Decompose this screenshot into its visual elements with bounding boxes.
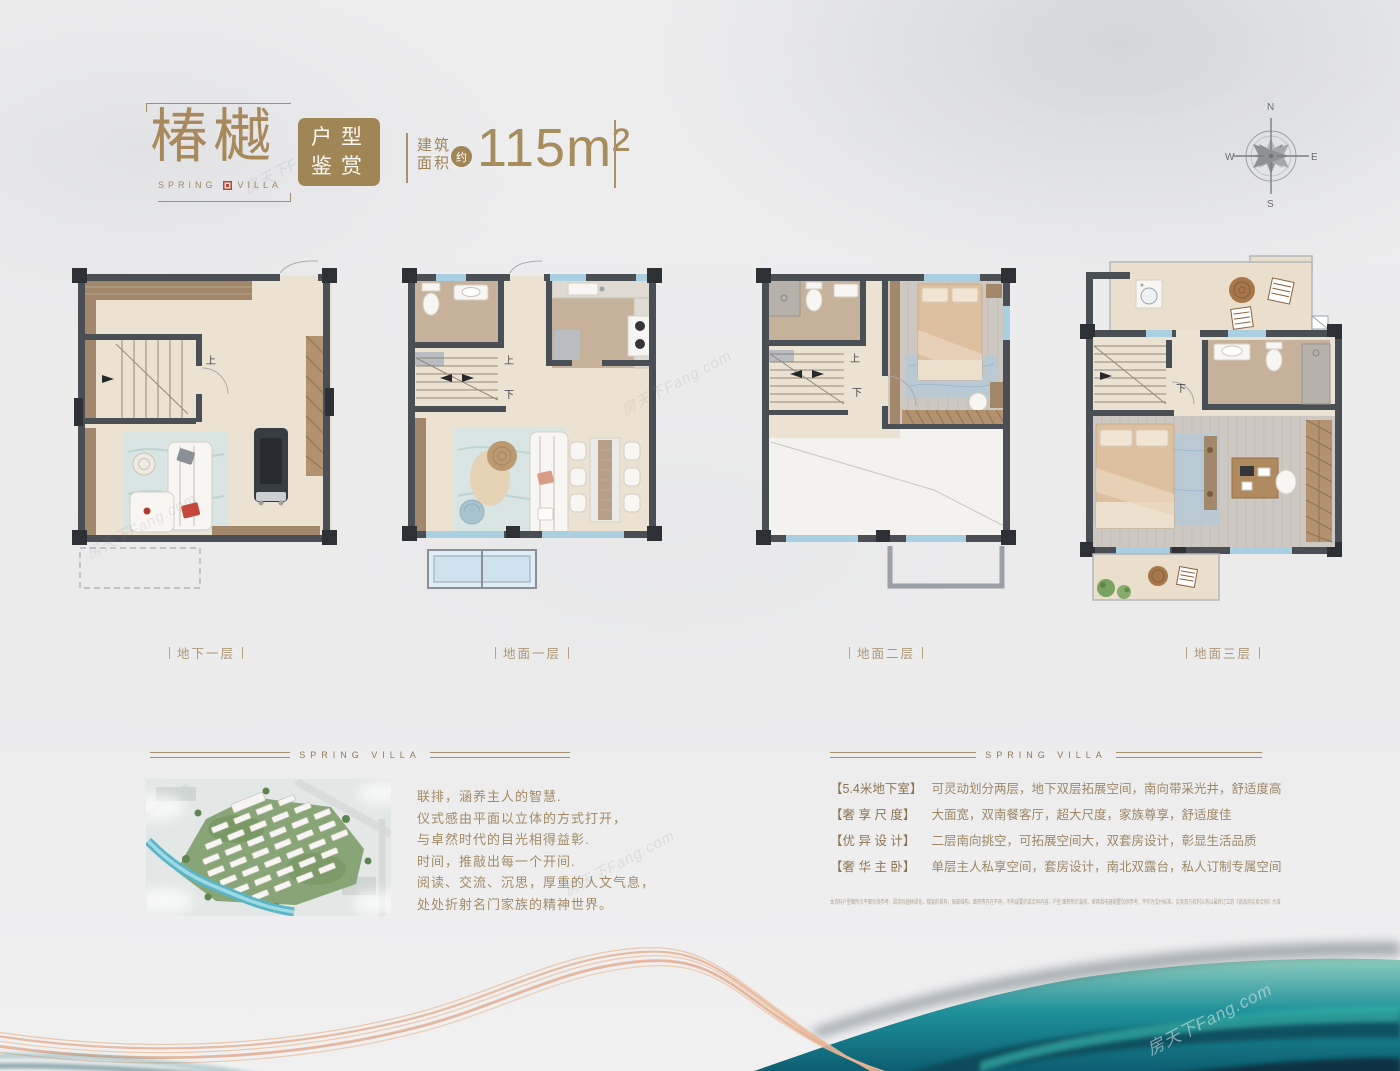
south-terrace bbox=[1093, 554, 1219, 600]
bedroom bbox=[882, 276, 1008, 429]
disclaimer-text: 本资料户型图所示平面仅供参考，因实际园林绿化、楼层的差异，局部结构、面积等存在不… bbox=[830, 897, 1281, 906]
poem-line: 处处折射名门家族的精神世界。 bbox=[417, 894, 655, 916]
feature-row: 【奢 华 主 卧】 单层主人私享空间，套房设计，南北双露台，私人订制专属空间 bbox=[830, 854, 1282, 880]
project-title: 椿樾 bbox=[150, 108, 276, 166]
compass-south: S bbox=[1267, 199, 1274, 210]
aerial-render-image bbox=[146, 779, 391, 916]
feature-desc: 二层南向挑空，可拓展空间大，双套房设计，彰显生活品质 bbox=[931, 834, 1256, 848]
living-area bbox=[454, 428, 568, 536]
area-divider-left bbox=[406, 133, 408, 183]
compass-east: E bbox=[1311, 152, 1317, 163]
feature-row: 【优 异 设 计】 二层南向挑空，可拓展空间大，双套房设计，彰显生活品质 bbox=[830, 828, 1282, 854]
stair-down-label: 下 bbox=[504, 390, 514, 401]
feature-tag: 【奢 华 主 卧】 bbox=[830, 854, 928, 880]
poem-line: 阅读、交流、沉思，厚重的人文气息， bbox=[417, 872, 655, 894]
feature-tag: 【优 异 设 计】 bbox=[830, 828, 928, 854]
peach-wave-lines bbox=[0, 948, 902, 1071]
floorplan-basement-label: 地下一层 bbox=[72, 643, 340, 662]
stair-up-label: 上 bbox=[850, 353, 860, 365]
area-label: 建筑 面积 bbox=[417, 137, 451, 173]
compass-west: W bbox=[1225, 152, 1235, 163]
brochure-page: 椿樾 SPRING VILLA 户型 鉴赏 建筑 面积 约 115m² N S … bbox=[0, 0, 1400, 1071]
stair-up-label: 上 bbox=[206, 355, 216, 367]
poem-line: 联排，涵养主人的智慧. bbox=[417, 786, 655, 808]
floorplan-floor3: 下 bbox=[1080, 254, 1342, 604]
title-decor-bottom bbox=[158, 193, 291, 202]
subtitle-left: SPRING bbox=[158, 180, 217, 190]
master-bedroom bbox=[1093, 416, 1335, 547]
section-rule-right: SPRING VILLA bbox=[830, 751, 1262, 759]
wave-decoration bbox=[0, 926, 1400, 1071]
section-rule-left: SPRING VILLA bbox=[150, 751, 570, 759]
seal-icon bbox=[223, 181, 232, 190]
feature-row: 【5.4米地下室】 可灵动划分两层，地下双层拓展空间，南向带采光井，舒适度高 bbox=[830, 776, 1282, 802]
floorplan-floor1-label: 地面一层 bbox=[402, 643, 662, 662]
bathroom bbox=[1202, 340, 1336, 410]
north-terrace bbox=[1110, 256, 1328, 332]
bay-window bbox=[428, 550, 536, 588]
stair-up-label: 上 bbox=[504, 355, 514, 367]
feature-list: 【5.4米地下室】 可灵动划分两层，地下双层拓展空间，南向带采光井，舒适度高 【… bbox=[830, 776, 1282, 880]
approx-circle: 约 bbox=[451, 146, 472, 167]
balcony-outline bbox=[890, 546, 1002, 586]
feature-tag: 【5.4米地下室】 bbox=[830, 776, 928, 802]
dining-area bbox=[570, 438, 640, 522]
area-value: 115m² bbox=[477, 121, 631, 175]
feature-row: 【奢 享 尺 度】 大面宽，双南餐客厅，超大尺度，家族尊享，舒适度佳 bbox=[830, 802, 1282, 828]
poem-line: 仪式感由平面以立体的方式打开， bbox=[417, 808, 655, 830]
poem-line: 与卓然时代的目光相得益彰. bbox=[417, 829, 655, 851]
feature-desc: 单层主人私享空间，套房设计，南北双露台，私人订制专属空间 bbox=[931, 860, 1281, 874]
feature-tag: 【奢 享 尺 度】 bbox=[830, 802, 928, 828]
treadmill bbox=[254, 428, 288, 506]
area-divider-right bbox=[614, 120, 616, 188]
floorplan-floor2: 上 下 bbox=[756, 260, 1016, 596]
feature-desc: 大面宽，双南餐客厅，超大尺度，家族尊享，舒适度佳 bbox=[931, 808, 1231, 822]
kitchen bbox=[546, 280, 654, 368]
feature-desc: 可灵动划分两层，地下双层拓展空间，南向带采光井，舒适度高 bbox=[931, 782, 1281, 796]
compass-north: N bbox=[1267, 102, 1274, 113]
stair-down-label: 下 bbox=[1176, 384, 1186, 395]
floorplan-floor1: 上 下 bbox=[402, 260, 662, 590]
stair-down-label: 下 bbox=[852, 388, 862, 399]
floorplan-floor2-label: 地面二层 bbox=[756, 643, 1016, 662]
floorplan-floor3-label: 地面三层 bbox=[1092, 643, 1354, 662]
compass-icon: N S W E bbox=[1225, 98, 1317, 210]
